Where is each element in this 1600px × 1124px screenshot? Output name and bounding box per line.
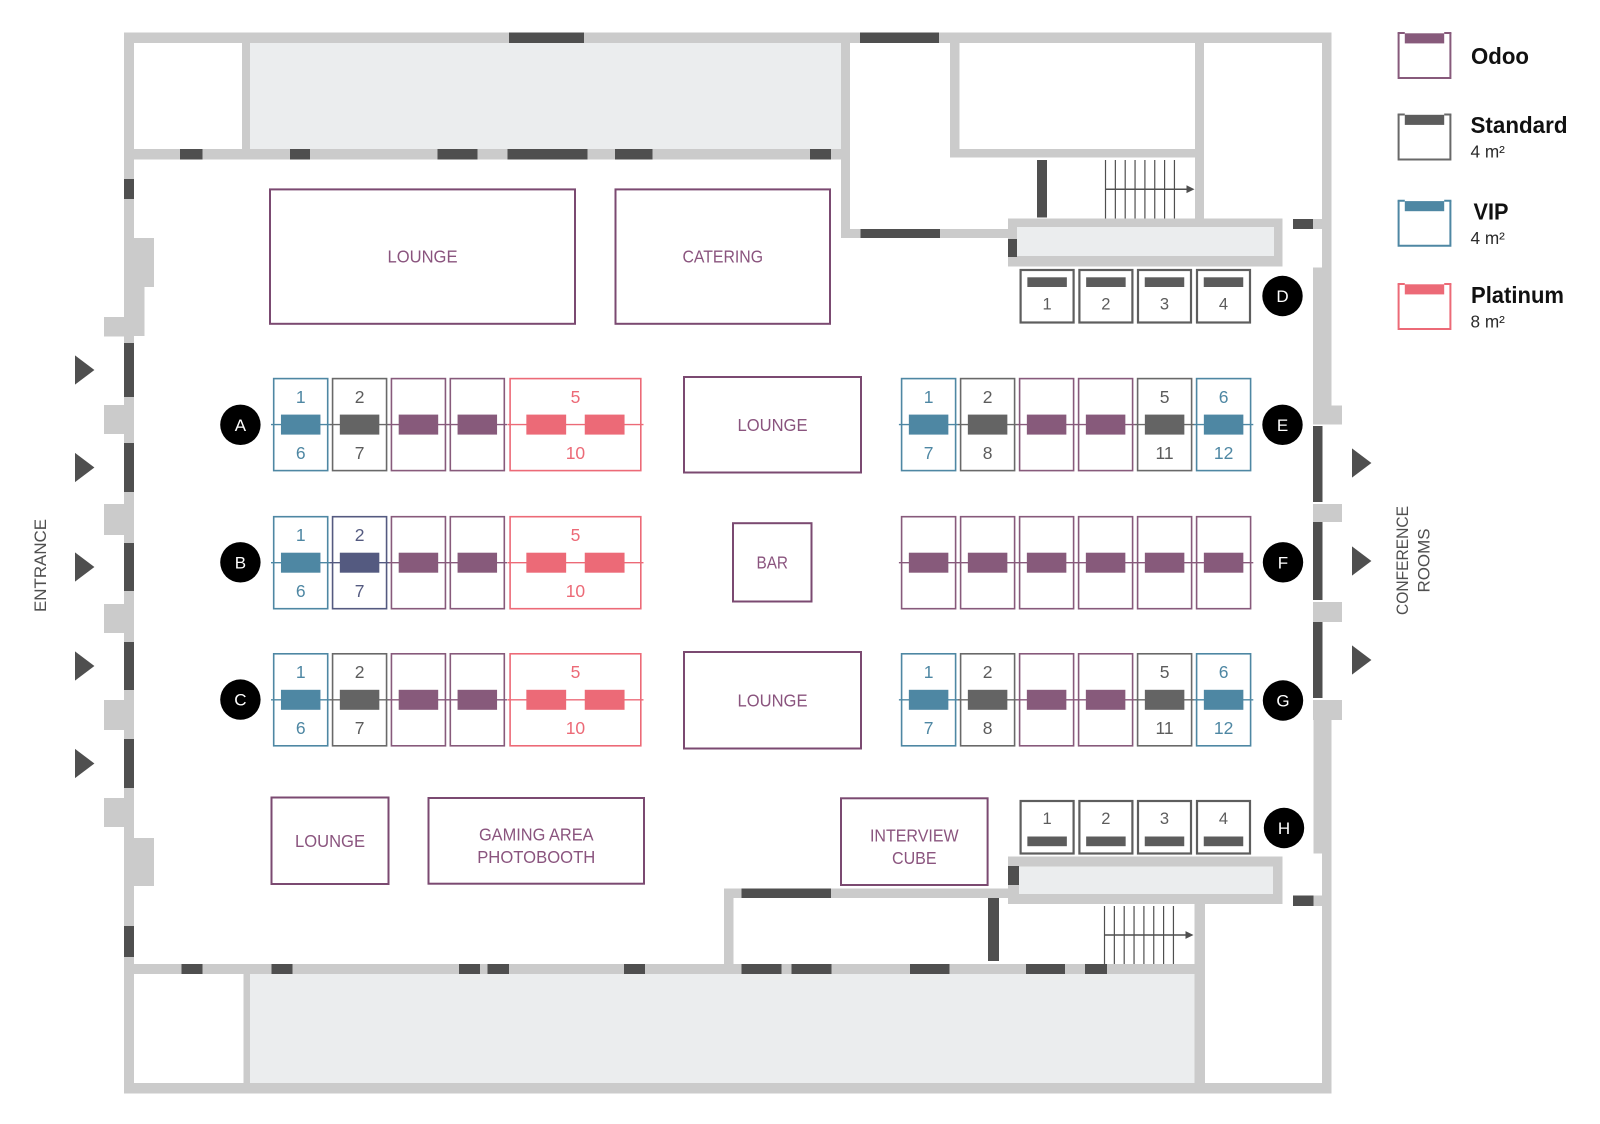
svg-text:4: 4 bbox=[1219, 296, 1228, 314]
svg-text:INTERVIEW: INTERVIEW bbox=[870, 825, 959, 845]
svg-text:7: 7 bbox=[355, 718, 365, 738]
svg-text:LOUNGE: LOUNGE bbox=[738, 415, 808, 435]
svg-text:7: 7 bbox=[355, 581, 365, 601]
svg-text:10: 10 bbox=[566, 718, 586, 738]
svg-text:2: 2 bbox=[355, 387, 365, 407]
svg-text:1: 1 bbox=[924, 387, 934, 407]
svg-text:LOUNGE: LOUNGE bbox=[738, 690, 808, 710]
svg-text:Platinum: Platinum bbox=[1471, 282, 1564, 308]
svg-text:E: E bbox=[1277, 416, 1288, 435]
svg-text:Odoo: Odoo bbox=[1471, 43, 1529, 69]
svg-text:1: 1 bbox=[924, 662, 934, 682]
svg-text:2: 2 bbox=[983, 387, 993, 407]
svg-text:5: 5 bbox=[571, 387, 581, 407]
svg-text:8: 8 bbox=[983, 443, 993, 463]
svg-text:BAR: BAR bbox=[757, 552, 789, 572]
svg-text:8: 8 bbox=[983, 718, 993, 738]
svg-text:LOUNGE: LOUNGE bbox=[295, 831, 365, 851]
svg-text:1: 1 bbox=[1043, 296, 1052, 314]
svg-text:12: 12 bbox=[1214, 443, 1233, 463]
svg-text:5: 5 bbox=[571, 525, 581, 545]
svg-text:4 m²: 4 m² bbox=[1471, 228, 1506, 248]
svg-text:8 m²: 8 m² bbox=[1471, 312, 1506, 332]
svg-text:5: 5 bbox=[1160, 387, 1170, 407]
svg-text:1: 1 bbox=[1043, 810, 1052, 828]
svg-text:ROOMS: ROOMS bbox=[1415, 529, 1434, 593]
svg-text:1: 1 bbox=[296, 387, 306, 407]
svg-text:7: 7 bbox=[924, 443, 934, 463]
svg-text:GAMING AREA: GAMING AREA bbox=[479, 825, 594, 845]
svg-text:7: 7 bbox=[924, 718, 934, 738]
svg-text:2: 2 bbox=[355, 525, 365, 545]
svg-text:F: F bbox=[1278, 553, 1288, 572]
svg-text:6: 6 bbox=[296, 718, 306, 738]
svg-text:3: 3 bbox=[1160, 810, 1169, 828]
svg-text:10: 10 bbox=[566, 443, 586, 463]
svg-text:2: 2 bbox=[1101, 296, 1110, 314]
svg-text:1: 1 bbox=[296, 525, 306, 545]
svg-text:2: 2 bbox=[355, 662, 365, 682]
svg-text:11: 11 bbox=[1156, 718, 1174, 738]
svg-text:H: H bbox=[1278, 819, 1290, 838]
svg-text:ENTRANCE: ENTRANCE bbox=[31, 519, 50, 612]
svg-text:6: 6 bbox=[296, 581, 306, 601]
svg-text:4: 4 bbox=[1219, 810, 1228, 828]
svg-text:11: 11 bbox=[1156, 443, 1174, 463]
svg-text:5: 5 bbox=[1160, 662, 1170, 682]
svg-text:6: 6 bbox=[1219, 662, 1229, 682]
svg-text:PHOTOBOOTH: PHOTOBOOTH bbox=[477, 847, 595, 867]
svg-text:2: 2 bbox=[983, 662, 993, 682]
svg-text:VIP: VIP bbox=[1474, 199, 1509, 225]
svg-text:CUBE: CUBE bbox=[892, 848, 937, 868]
svg-text:2: 2 bbox=[1101, 810, 1110, 828]
svg-text:7: 7 bbox=[355, 443, 365, 463]
svg-text:C: C bbox=[234, 691, 246, 710]
svg-text:10: 10 bbox=[566, 581, 586, 601]
svg-text:G: G bbox=[1276, 692, 1289, 711]
svg-text:Standard: Standard bbox=[1471, 112, 1568, 138]
svg-text:6: 6 bbox=[1219, 387, 1229, 407]
svg-text:5: 5 bbox=[571, 662, 581, 682]
svg-text:CONFERENCE: CONFERENCE bbox=[1393, 506, 1412, 615]
svg-text:A: A bbox=[235, 416, 247, 435]
svg-text:LOUNGE: LOUNGE bbox=[388, 247, 458, 267]
svg-text:CATERING: CATERING bbox=[682, 247, 763, 267]
svg-text:3: 3 bbox=[1160, 296, 1169, 314]
svg-text:D: D bbox=[1276, 287, 1288, 306]
svg-text:12: 12 bbox=[1214, 718, 1233, 738]
svg-text:6: 6 bbox=[296, 443, 306, 463]
svg-text:4 m²: 4 m² bbox=[1471, 142, 1506, 162]
svg-text:1: 1 bbox=[296, 662, 306, 682]
svg-text:B: B bbox=[235, 553, 246, 572]
